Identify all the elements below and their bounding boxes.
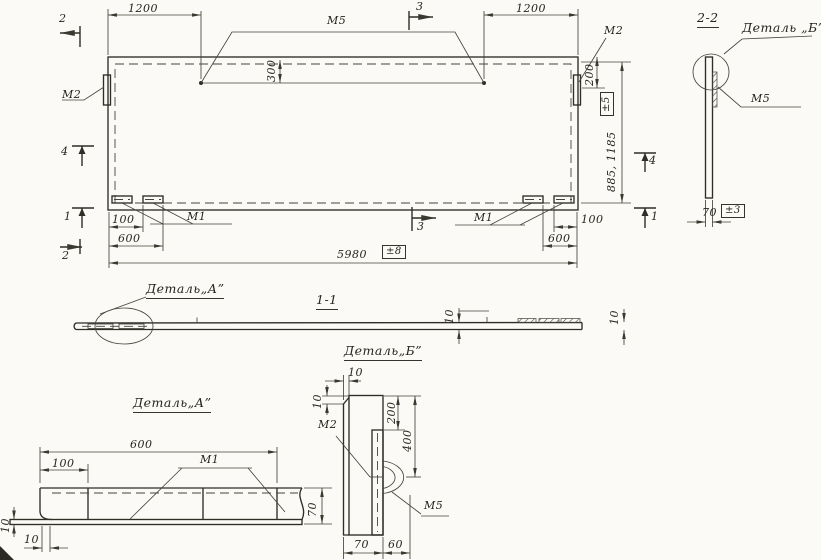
section-marker-4-left: 4 <box>61 146 69 157</box>
dim-300: 300 <box>266 60 277 83</box>
tolerance-thickness-box: ±3 <box>721 204 745 218</box>
m5-weld-leader <box>199 32 486 85</box>
detail-b-callout: Деталь „Б” <box>742 22 821 35</box>
m2-plate-right <box>574 75 581 105</box>
blueprint-sheet: 1200 1200 М5 3 2 М2 М2 300 200 ±5 885, 1… <box>0 0 821 560</box>
section-marker-1-left: 1 <box>64 211 72 222</box>
detail-b-label-m5: М5 <box>424 500 443 511</box>
dim-100-right: 100 <box>581 214 604 225</box>
detail-b-dim-200: 200 <box>386 402 397 425</box>
detail-a-dim-10-left: 10 <box>0 518 11 533</box>
dim-70-thickness: 70 <box>702 207 717 218</box>
plate-label-m2-left: М2 <box>62 89 81 100</box>
dim-200-right: 200 <box>584 64 595 87</box>
detail-b-dim-70: 70 <box>354 539 369 550</box>
dim-height: 885, 1185 <box>606 132 617 192</box>
detail-b-dim-10-top: 10 <box>348 367 363 378</box>
detail-b-title: Деталь„Б” <box>344 345 422 361</box>
section-2-2-view <box>687 36 812 227</box>
tolerance-length-box: ±8 <box>382 245 406 259</box>
detail-a-dim-600: 600 <box>130 439 153 450</box>
m5-weld-symbol <box>383 461 404 494</box>
dim-100-left: 100 <box>112 214 135 225</box>
strip-segment <box>518 319 536 323</box>
detail-a-title: Деталь„А” <box>133 397 211 413</box>
dim-10-section-left: 10 <box>444 309 455 324</box>
detail-a-dim-10-bottom: 10 <box>24 534 39 545</box>
section-markers <box>60 11 656 254</box>
weld-label-m5: М5 <box>327 15 346 26</box>
detail-a-dim-70: 70 <box>307 502 318 517</box>
m1-brackets <box>112 196 574 203</box>
dim-600-right: 600 <box>548 233 571 244</box>
dim-overall-length: 5980 <box>337 249 367 260</box>
tolerance-height-box: ±5 <box>600 92 614 116</box>
detail-callout-circle <box>693 54 729 90</box>
drawing-linework <box>0 0 821 560</box>
plate-label-m2-right: М2 <box>604 25 623 36</box>
strip-segment <box>539 319 559 323</box>
section-marker-3-bottom: 3 <box>417 221 425 232</box>
detail-a-view <box>0 447 332 560</box>
detail-b-dim-400: 400 <box>402 430 413 453</box>
detail-b-dim-60: 60 <box>388 539 403 550</box>
dim-600-left: 600 <box>118 233 141 244</box>
detail-a-dim-100: 100 <box>52 458 75 469</box>
section-marker-4-right: 4 <box>649 155 657 166</box>
main-view <box>60 9 656 268</box>
bracket-label-m1-right: М1 <box>474 212 493 223</box>
scan-corner-artifact <box>0 546 14 560</box>
section-marker-2-top: 2 <box>59 13 67 24</box>
detail-a-callout: Деталь„А” <box>146 283 224 299</box>
section-marker-1-right: 1 <box>651 211 659 222</box>
dim-10-section-right: 10 <box>609 310 620 325</box>
detail-a-label-m1: М1 <box>200 454 219 465</box>
section-1-1-title: 1-1 <box>316 294 338 310</box>
m2-plate-left <box>104 75 111 105</box>
dim-1200-left: 1200 <box>128 3 158 14</box>
dim-1200-right: 1200 <box>516 3 546 14</box>
section-1-1-view <box>74 297 624 345</box>
detail-b-dim-10-left: 10 <box>312 394 323 409</box>
detail-b-label-m2: М2 <box>318 419 337 430</box>
section-2-2-title: 2-2 <box>697 12 719 28</box>
strip-segment <box>561 319 580 323</box>
bracket-label-m1-left: М1 <box>187 211 206 222</box>
weld-label-m5-section: М5 <box>751 93 770 104</box>
section-marker-3-top: 3 <box>416 1 424 12</box>
section-marker-2-bottom: 2 <box>62 250 70 261</box>
